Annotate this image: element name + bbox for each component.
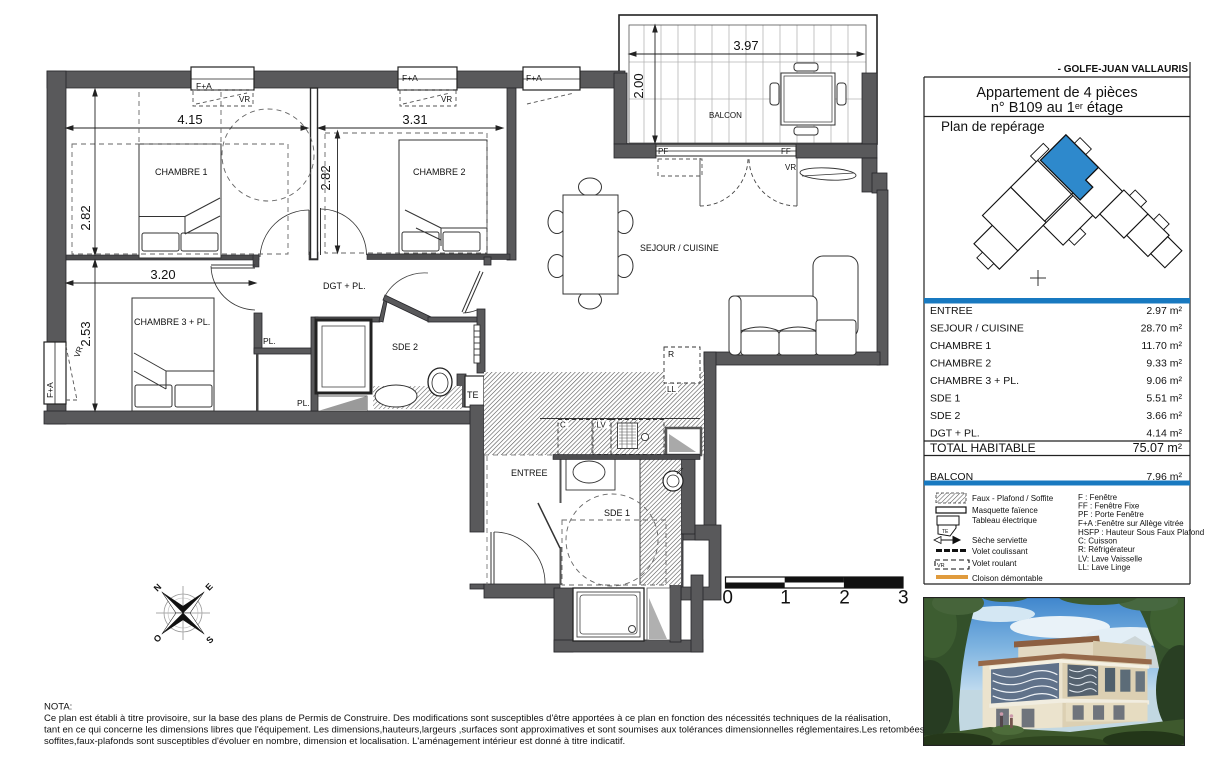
svg-text:F+A: F+A [402,73,418,83]
svg-text:3.97: 3.97 [733,38,758,53]
svg-text:28.70 m²: 28.70 m² [1141,323,1183,335]
svg-text:CHAMBRE 3 + PL.: CHAMBRE 3 + PL. [930,375,1019,387]
svg-text:DGT + PL.: DGT + PL. [930,428,980,440]
svg-text:Faux - Plafond / Soffite: Faux - Plafond / Soffite [972,494,1054,503]
svg-text:PF: PF [658,147,668,156]
svg-text:F+A: F+A [526,73,542,83]
svg-text:Appartement de 4 pièces: Appartement de 4 pièces [976,85,1137,101]
svg-text:PL.: PL. [263,336,276,346]
svg-text:3.20: 3.20 [150,267,175,282]
svg-text:F+A: F+A [196,81,212,91]
svg-text:9.06 m²: 9.06 m² [1146,375,1182,387]
svg-text:SDE 2: SDE 2 [392,342,418,352]
svg-text:VR: VR [441,95,452,104]
svg-text:DGT + PL.: DGT + PL. [323,281,366,291]
svg-text:2.82: 2.82 [318,165,333,190]
svg-text:Cloison démontable: Cloison démontable [972,574,1043,583]
svg-text:Volet roulant: Volet roulant [972,559,1017,568]
svg-text:SEJOUR / CUISINE: SEJOUR / CUISINE [930,323,1024,335]
svg-text:3: 3 [898,588,909,609]
svg-text:2.00: 2.00 [631,73,646,98]
svg-text:LV: LV [597,421,607,430]
svg-text:0: 0 [722,588,733,609]
svg-text:1: 1 [780,588,791,609]
svg-text:LL: Lave Linge: LL: Lave Linge [1078,563,1131,572]
svg-text:F+A :Fenêtre sur Allège vitrée: F+A :Fenêtre sur Allège vitrée [1078,519,1184,528]
svg-text:2.97 m²: 2.97 m² [1146,305,1182,317]
svg-text:Ce plan est établi à titre pro: Ce plan est établi à titre provisoire, s… [44,713,891,724]
svg-text:tant en ce qui concerne les di: tant en ce qui concerne les dimensions l… [44,725,927,736]
svg-text:SEJOUR / CUISINE: SEJOUR / CUISINE [640,243,719,253]
svg-text:11.70 m²: 11.70 m² [1141,340,1182,352]
svg-text:2: 2 [839,588,850,609]
svg-text:PL.: PL. [297,398,310,408]
svg-text:TOTAL HABITABLE: TOTAL HABITABLE [930,441,1036,455]
svg-text:ENTREE: ENTREE [511,468,548,478]
svg-text:2.82: 2.82 [78,205,93,230]
svg-text:VR: VR [239,95,250,104]
svg-text:5.51 m²: 5.51 m² [1146,393,1182,405]
svg-text:F+A: F+A [45,382,55,398]
svg-text:ENTREE: ENTREE [930,305,973,317]
svg-text:TE: TE [942,529,949,535]
svg-text:3.66 m²: 3.66 m² [1146,410,1182,422]
svg-text:TE: TE [467,390,479,400]
svg-text:4.15: 4.15 [177,112,202,127]
svg-text:75.07 m²: 75.07 m² [1133,441,1182,455]
svg-text:SDE 2: SDE 2 [930,410,961,422]
svg-text:VR: VR [937,563,945,569]
svg-text:Tableau électrique: Tableau électrique [972,516,1037,525]
svg-text:- GOLFE-JUAN VALLAURIS: - GOLFE-JUAN VALLAURIS [1058,64,1189,75]
svg-text:PF : Porte Fenêtre: PF : Porte Fenêtre [1078,510,1144,519]
svg-text:4.14 m²: 4.14 m² [1146,428,1182,440]
svg-text:LL: LL [667,385,676,394]
svg-text:R: Réfrigérateur: R: Réfrigérateur [1078,545,1135,554]
svg-text:CHAMBRE 2: CHAMBRE 2 [930,358,991,370]
svg-text:Sèche serviette: Sèche serviette [972,536,1028,545]
svg-text:soffites,faux-plafonds sont su: soffites,faux-plafonds sont susceptibles… [44,736,625,747]
svg-text:SDE 1: SDE 1 [604,508,630,518]
svg-text:Masquette faïence: Masquette faïence [972,506,1038,515]
svg-text:n° B109 au 1er étage: n° B109 au 1er étage [991,100,1123,116]
svg-text:CHAMBRE 3 + PL.: CHAMBRE 3 + PL. [134,317,210,327]
svg-text:9.33 m²: 9.33 m² [1146,358,1182,370]
svg-text:Volet coulissant: Volet coulissant [972,547,1028,556]
svg-text:CHAMBRE 2: CHAMBRE 2 [413,167,466,177]
svg-text:NOTA:: NOTA: [44,702,72,713]
svg-text:VR: VR [785,163,796,172]
svg-text:Plan de repérage: Plan de repérage [941,119,1045,134]
svg-text:3.31: 3.31 [402,112,427,127]
svg-text:CHAMBRE 1: CHAMBRE 1 [155,167,208,177]
svg-text:C: C [560,421,566,430]
svg-text:CHAMBRE 1: CHAMBRE 1 [930,340,991,352]
svg-text:R: R [668,349,674,359]
svg-text:2.53: 2.53 [78,321,93,346]
svg-text:SDE 1: SDE 1 [930,393,961,405]
svg-text:FF: FF [781,147,791,156]
svg-text:BALCON: BALCON [709,111,742,120]
